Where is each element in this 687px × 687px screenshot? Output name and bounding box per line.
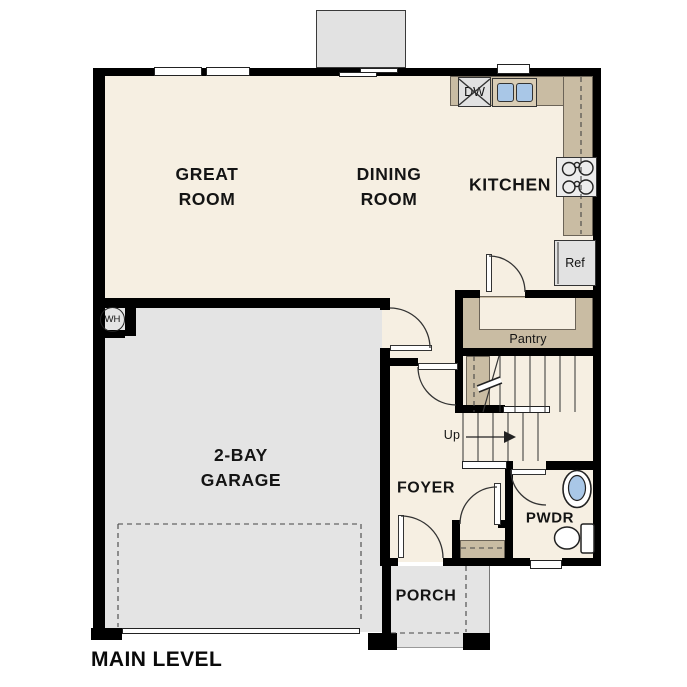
porch-label: PORCH — [396, 586, 457, 609]
floor-plan: DW Ref WH — [0, 0, 687, 687]
stair-risers-upper — [500, 356, 575, 412]
pwdr-label: PWDR — [526, 507, 574, 528]
kitchen-label: KITCHEN — [469, 173, 551, 198]
door-swing-arcs — [390, 256, 546, 558]
great-room-label: GREAT ROOM — [176, 162, 239, 212]
hall-door-arc — [418, 367, 456, 405]
powder-sink-icon — [563, 471, 591, 508]
dishwasher-x — [459, 79, 490, 105]
pwdr-door-arc — [511, 470, 546, 505]
cooktop-burners — [563, 161, 594, 194]
plan-linework — [0, 0, 687, 687]
dining-room-label: DINING ROOM — [357, 162, 422, 212]
dashed-guides — [118, 77, 581, 633]
pantry-door-arc — [489, 256, 525, 292]
foyer-label: FOYER — [397, 478, 455, 501]
garage-label: 2-BAY GARAGE — [201, 443, 281, 493]
closet-door-arc — [460, 487, 497, 524]
plan-title: MAIN LEVEL — [91, 648, 222, 672]
stair-break-line — [477, 356, 502, 412]
front-door-arc — [401, 516, 443, 558]
stairs-up-label: Up — [444, 427, 460, 445]
garage-door-arc — [390, 308, 430, 348]
pantry-label: Pantry — [509, 331, 546, 349]
